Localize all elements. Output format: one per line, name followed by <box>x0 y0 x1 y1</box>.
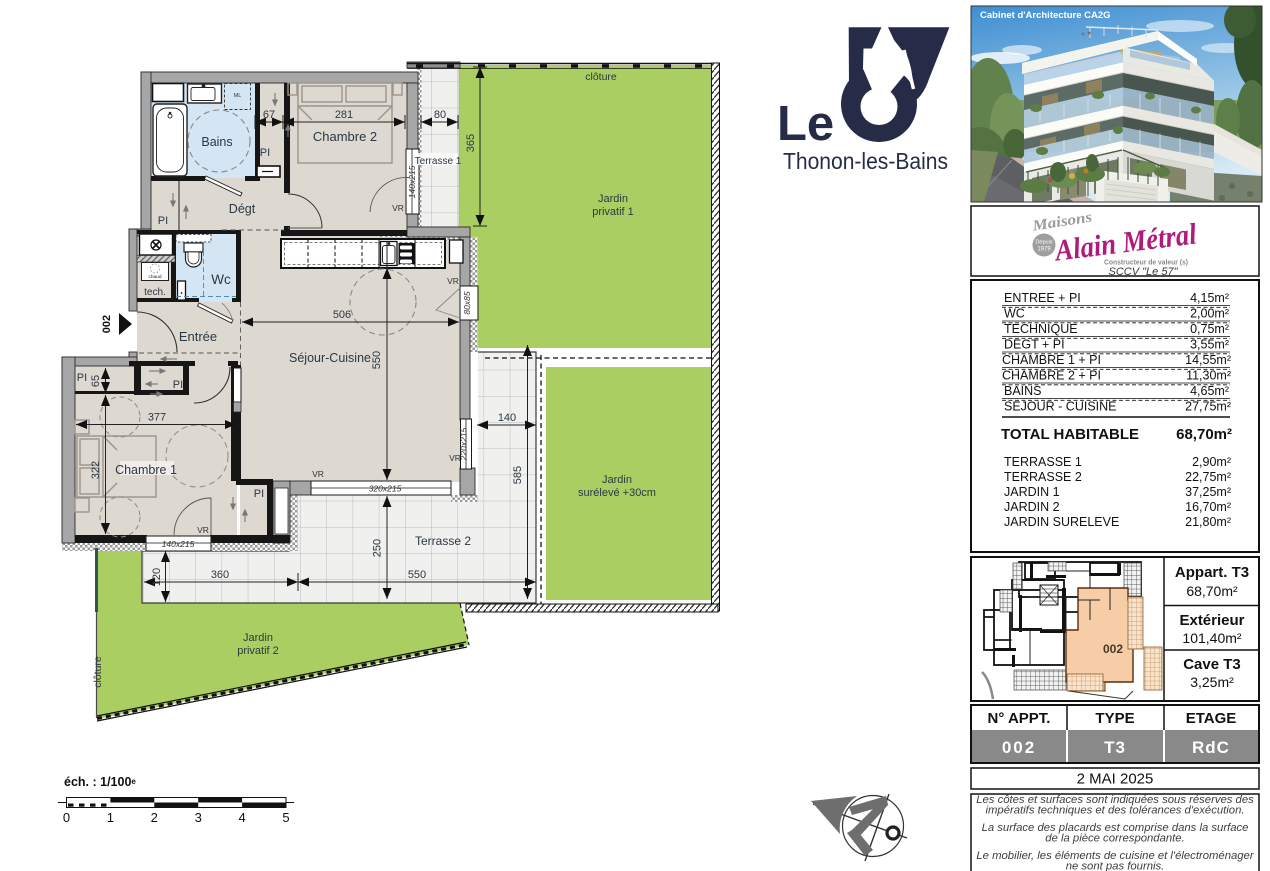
svg-text:14,55m²: 14,55m² <box>1185 353 1231 367</box>
svg-text:22,75m²: 22,75m² <box>1185 470 1231 484</box>
svg-text:1979: 1979 <box>1037 247 1051 253</box>
svg-text:de la pièce correspondante.: de la pièce correspondante. <box>1045 833 1184 845</box>
svg-text:0: 0 <box>63 810 70 825</box>
svg-text:585: 585 <box>512 466 524 484</box>
svg-text:PI: PI <box>260 147 270 159</box>
svg-text:Dégt: Dégt <box>229 202 256 216</box>
svg-text:322: 322 <box>90 461 102 479</box>
svg-text:80: 80 <box>434 109 446 121</box>
svg-text:377: 377 <box>148 412 166 424</box>
svg-text:4: 4 <box>238 810 245 825</box>
svg-text:281: 281 <box>335 109 353 121</box>
svg-text:3: 3 <box>195 810 202 825</box>
svg-text:privatif 2: privatif 2 <box>237 645 279 657</box>
svg-text:360: 360 <box>211 569 229 581</box>
svg-text:506: 506 <box>333 309 351 321</box>
svg-text:éch. : 1/100e: éch. : 1/100e <box>64 775 136 789</box>
svg-text:002: 002 <box>1103 642 1123 656</box>
svg-text:JARDIN SURELEVE: JARDIN SURELEVE <box>1004 515 1119 529</box>
svg-text:privatif 1: privatif 1 <box>592 206 634 218</box>
svg-text:Chambre 1: Chambre 1 <box>115 463 177 477</box>
svg-text:101,40m²: 101,40m² <box>1182 630 1241 646</box>
svg-text:002: 002 <box>1002 738 1036 757</box>
svg-text:BAINS: BAINS <box>1004 384 1042 398</box>
svg-text:WC: WC <box>1004 307 1025 321</box>
svg-text:Extérieur: Extérieur <box>1179 612 1244 629</box>
svg-text:Bains: Bains <box>201 135 232 149</box>
svg-text:Depuis: Depuis <box>1035 240 1052 246</box>
svg-text:2,00m²: 2,00m² <box>1190 307 1229 321</box>
svg-text:21,80m²: 21,80m² <box>1185 515 1231 529</box>
svg-text:67: 67 <box>263 109 275 121</box>
svg-text:140x215: 140x215 <box>407 165 417 198</box>
svg-text:Wc: Wc <box>211 272 231 287</box>
svg-text:Terrasse 1: Terrasse 1 <box>415 156 462 167</box>
svg-text:clôture: clôture <box>92 656 104 688</box>
svg-text:CHAMBRE 2 + PI: CHAMBRE 2 + PI <box>1002 369 1101 383</box>
svg-text:65: 65 <box>90 375 102 387</box>
svg-text:Chambre 2: Chambre 2 <box>313 129 377 144</box>
svg-text:TERRASSE 1: TERRASSE 1 <box>1004 455 1082 469</box>
svg-text:VR: VR <box>392 203 404 213</box>
svg-text:Le: Le <box>777 97 834 151</box>
svg-text:2 MAI 2025: 2 MAI 2025 <box>1077 771 1154 788</box>
svg-text:320x215: 320x215 <box>369 484 402 494</box>
svg-text:002: 002 <box>101 315 113 333</box>
svg-text:ENTREE + PI: ENTREE + PI <box>1004 291 1081 305</box>
svg-text:16,70m²: 16,70m² <box>1185 500 1231 514</box>
svg-text:27,75m²: 27,75m² <box>1185 400 1231 414</box>
svg-text:Séjour-Cuisine: Séjour-Cuisine <box>289 351 371 365</box>
svg-text:220x215: 220x215 <box>459 427 469 461</box>
svg-text:T3: T3 <box>1104 738 1126 757</box>
svg-text:SEJOUR - CUISINE: SEJOUR - CUISINE <box>1004 400 1117 414</box>
svg-text:140: 140 <box>498 412 516 424</box>
svg-text:CHAMBRE 1 + PI: CHAMBRE 1 + PI <box>1002 353 1101 367</box>
svg-text:VR: VR <box>447 276 459 286</box>
svg-text:250: 250 <box>372 539 384 557</box>
svg-text:2: 2 <box>151 810 158 825</box>
svg-text:0,75m²: 0,75m² <box>1190 322 1229 336</box>
svg-text:impératifs techniques et des t: impératifs techniques et des tolérances … <box>986 805 1245 817</box>
svg-text:TECHNIQUE: TECHNIQUE <box>1004 322 1078 336</box>
svg-text:Entrée: Entrée <box>179 329 217 344</box>
svg-text:N° APPT.: N° APPT. <box>988 710 1051 727</box>
svg-text:VR: VR <box>312 469 324 479</box>
svg-text:ML: ML <box>234 93 242 99</box>
svg-text:Jardin: Jardin <box>243 632 273 644</box>
svg-text:68,70m²: 68,70m² <box>1186 583 1238 599</box>
svg-text:TYPE: TYPE <box>1095 710 1134 727</box>
svg-text:JARDIN 2: JARDIN 2 <box>1004 500 1060 514</box>
svg-text:365: 365 <box>465 134 477 152</box>
svg-text:Cave T3: Cave T3 <box>1183 656 1241 673</box>
svg-text:11,30m²: 11,30m² <box>1186 369 1231 383</box>
svg-text:80x85: 80x85 <box>462 291 472 314</box>
svg-text:ETAGE: ETAGE <box>1186 710 1237 727</box>
svg-text:PI: PI <box>254 488 264 500</box>
svg-text:VR: VR <box>197 525 209 535</box>
svg-text:clôture: clôture <box>585 71 617 83</box>
svg-text:Jardin: Jardin <box>598 193 628 205</box>
svg-text:ne sont pas fournis.: ne sont pas fournis. <box>1066 861 1165 871</box>
svg-text:550: 550 <box>371 351 383 369</box>
svg-text:140x215: 140x215 <box>162 539 195 549</box>
svg-text:PI: PI <box>158 215 168 227</box>
svg-text:1: 1 <box>107 810 114 825</box>
svg-text:TERRASSE 2: TERRASSE 2 <box>1004 470 1082 484</box>
svg-text:120: 120 <box>151 568 163 586</box>
svg-text:PI: PI <box>173 379 183 391</box>
svg-text:DEGT + PI: DEGT + PI <box>1004 338 1065 352</box>
svg-text:Terrasse 2: Terrasse 2 <box>415 534 471 548</box>
svg-text:chaud: chaud <box>148 274 161 280</box>
svg-text:5: 5 <box>282 810 289 825</box>
svg-text:SCCV "Le 57": SCCV "Le 57" <box>1109 266 1179 278</box>
svg-text:Thonon-les-Bains: Thonon-les-Bains <box>783 148 948 174</box>
svg-text:TOTAL HABITABLE: TOTAL HABITABLE <box>1001 426 1139 443</box>
svg-text:68,70m²: 68,70m² <box>1176 426 1232 443</box>
svg-text:PI: PI <box>77 372 87 384</box>
svg-text:surélevé +30cm: surélevé +30cm <box>578 487 656 499</box>
svg-text:550: 550 <box>408 569 426 581</box>
svg-text:JARDIN 1: JARDIN 1 <box>1004 485 1060 499</box>
svg-text:37,25m²: 37,25m² <box>1185 485 1231 499</box>
svg-text:2,90m²: 2,90m² <box>1192 455 1231 469</box>
svg-text:4,15m²: 4,15m² <box>1190 291 1229 305</box>
svg-text:Appart. T3: Appart. T3 <box>1175 564 1249 581</box>
svg-text:3,25m²: 3,25m² <box>1190 674 1234 690</box>
svg-text:RdC: RdC <box>1192 738 1230 757</box>
svg-text:Cabinet d'Architecture CA2G: Cabinet d'Architecture CA2G <box>980 10 1111 21</box>
svg-text:Jardin: Jardin <box>602 474 632 486</box>
svg-text:4,65m²: 4,65m² <box>1190 384 1229 398</box>
svg-text:tech.: tech. <box>144 287 166 298</box>
svg-text:3,55m²: 3,55m² <box>1190 338 1229 352</box>
